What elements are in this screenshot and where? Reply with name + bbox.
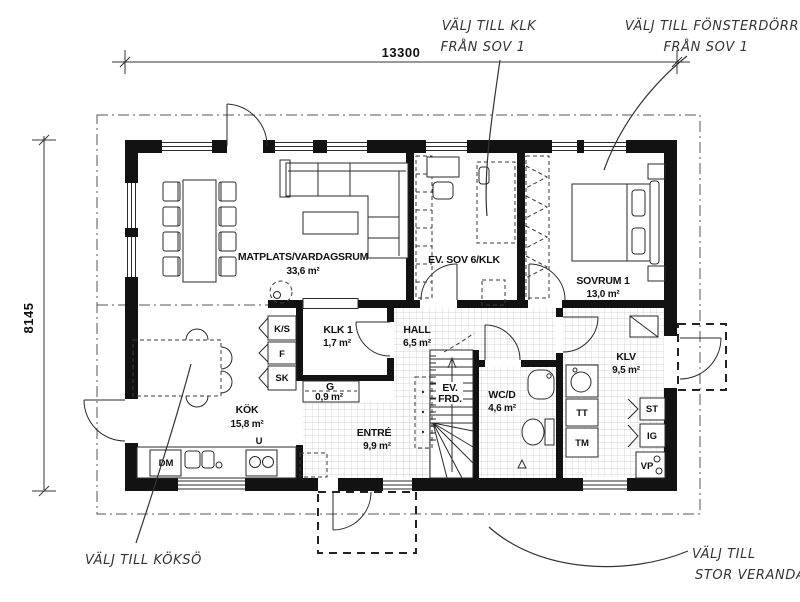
option-fireplace (270, 281, 292, 303)
sofa (280, 160, 408, 258)
kitchen-closets: K/S F SK (259, 316, 296, 390)
svg-text:4,6 m²: 4,6 m² (488, 403, 517, 414)
svg-text:VÄLJ TILL KLK: VÄLJ TILL KLK (442, 18, 537, 34)
window (178, 478, 245, 492)
door-klk1 (356, 322, 390, 356)
coffee-table (303, 212, 358, 234)
staircase (430, 333, 474, 478)
option-side-porch-outline (678, 324, 726, 390)
svg-text:FRÅN SOV 1: FRÅN SOV 1 (663, 39, 748, 55)
svg-text:VÄLJ TILL: VÄLJ TILL (692, 546, 756, 562)
window (327, 140, 367, 154)
annotation-veranda: VÄLJ TILL STOR VERANDA (489, 527, 800, 583)
kitchen-counter: DM U (137, 436, 296, 478)
sideboard (303, 299, 358, 309)
svg-text:13,0 m²: 13,0 m² (586, 289, 620, 300)
floor-plan-page: 13300 8145 (0, 0, 800, 602)
room-label-entre: ENTRÉ (357, 426, 392, 439)
window (584, 140, 626, 154)
ig-label: IG (647, 431, 657, 442)
svg-text:1,7 m²: 1,7 m² (323, 338, 352, 349)
window (383, 478, 412, 492)
door-side-left (84, 400, 125, 441)
room-label-klk1: KLK 1 (323, 324, 353, 336)
room-label-wcd: WC/D (488, 389, 516, 401)
ev-sov6-furniture (416, 156, 515, 305)
dimension-width-label: 13300 (382, 45, 421, 60)
svg-text:FRD.: FRD. (438, 393, 462, 405)
svg-text:9,9 m²: 9,9 m² (363, 441, 392, 452)
room-label-kok: KÖK (236, 403, 259, 416)
room-label-ev-sov6: EV. SOV 6/KLK (428, 254, 500, 266)
svg-text:VÄLJ TILL FÖNSTERDÖRR: VÄLJ TILL FÖNSTERDÖRR (625, 17, 799, 34)
room-label-klv: KLV (616, 351, 636, 363)
window (426, 140, 467, 154)
oven-label: U (256, 436, 263, 447)
dryer-label: TT (576, 408, 588, 419)
dining-set (163, 180, 236, 282)
room-label-sovrum1: SOVRUM 1 (576, 275, 630, 287)
bedroom-furniture (572, 164, 665, 281)
svg-text:9,5 m²: 9,5 m² (612, 365, 641, 376)
window (125, 183, 139, 228)
svg-text:15,8 m²: 15,8 m² (230, 419, 264, 430)
window (125, 237, 139, 277)
room-label-matplats: MATPLATS/VARDAGSRUM (238, 251, 369, 263)
vp-label: VP (641, 461, 654, 472)
room-label-hall: HALL (403, 324, 431, 336)
window (162, 140, 212, 154)
dimension-height-label: 8145 (21, 303, 36, 334)
floor-plan-drawing: 13300 8145 (0, 0, 800, 602)
window (552, 140, 577, 154)
door-entre (333, 492, 371, 530)
dimension-top: 13300 (112, 45, 690, 74)
svg-text:FRÅN SOV 1: FRÅN SOV 1 (440, 39, 525, 55)
washer-label: TM (575, 438, 589, 449)
svg-text:VÄLJ TILL KÖKSÖ: VÄLJ TILL KÖKSÖ (85, 551, 202, 568)
svg-text:STOR VERANDA: STOR VERANDA (695, 568, 800, 583)
window (583, 478, 627, 492)
svg-text:6,5 m²: 6,5 m² (403, 338, 432, 349)
svg-text:33,6 m²: 33,6 m² (286, 266, 320, 277)
window (275, 140, 313, 154)
door-sovrum1 (529, 264, 565, 300)
dimension-left: 8145 (21, 135, 56, 496)
svg-text:0,9 m²: 0,9 m² (315, 392, 344, 403)
ks-label: K/S (274, 324, 290, 335)
st-label: ST (646, 404, 658, 415)
f-label: F (279, 349, 285, 360)
option-wardrobe-strip (526, 156, 549, 298)
sk-label: SK (275, 373, 288, 384)
